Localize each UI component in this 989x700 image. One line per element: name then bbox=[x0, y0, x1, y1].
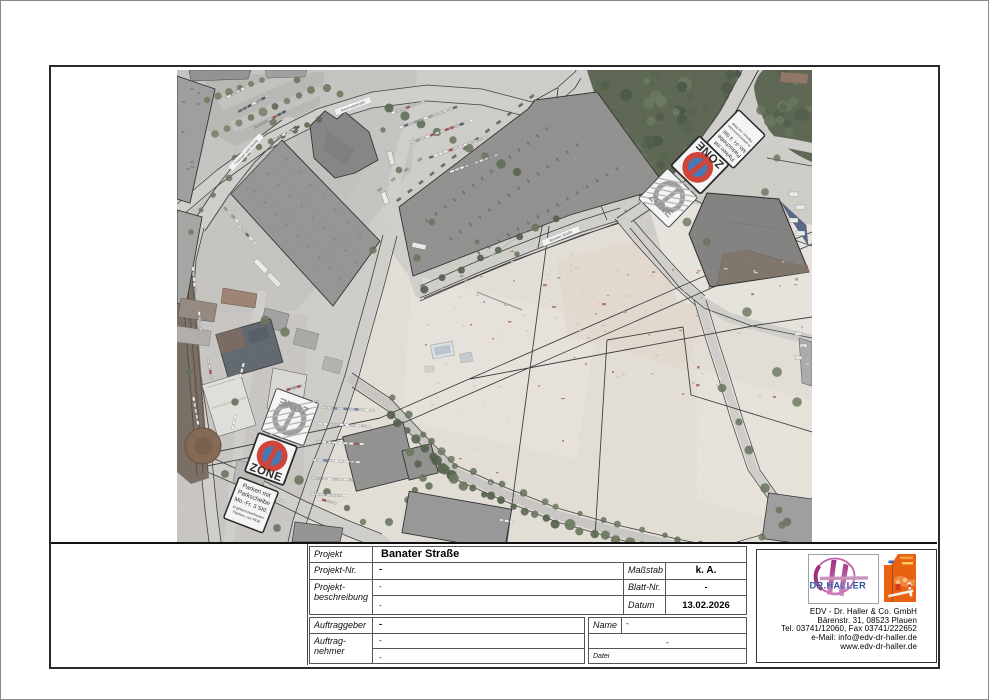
svg-text:DR.HALLER: DR.HALLER bbox=[810, 581, 867, 591]
